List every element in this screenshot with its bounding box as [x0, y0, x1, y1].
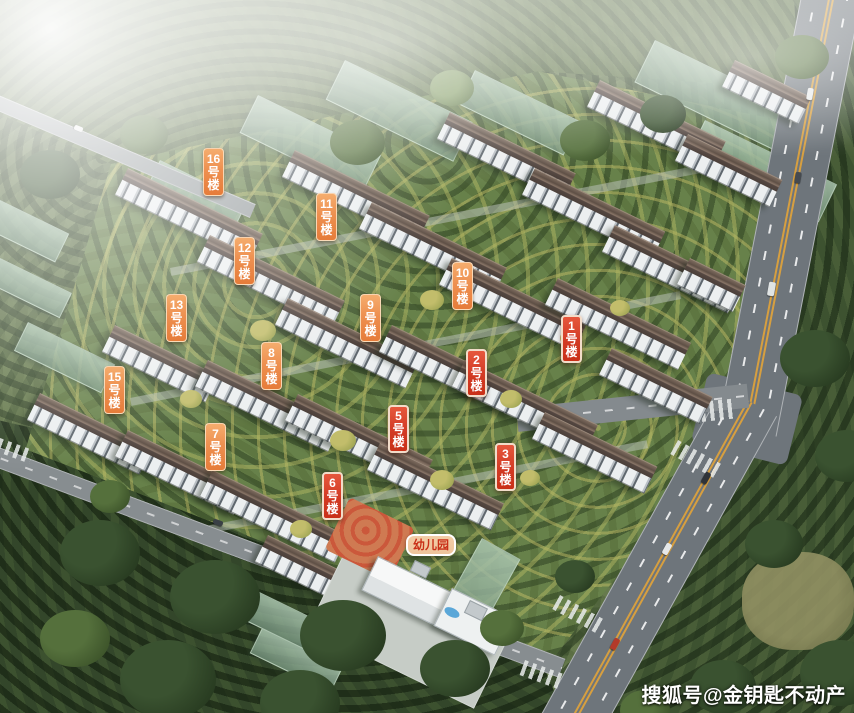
car	[212, 518, 223, 526]
car	[73, 124, 83, 132]
watermark: 搜狐号@金钥匙不动产	[641, 679, 846, 708]
car	[661, 542, 672, 555]
car	[794, 172, 802, 184]
car	[609, 637, 620, 650]
car	[767, 281, 776, 296]
site-aerial-render: 1号楼2号楼3号楼5号楼6号楼7号楼8号楼9号楼10号楼11号楼12号楼13号楼…	[0, 0, 854, 713]
kindergarten-label: 幼儿园	[406, 534, 456, 556]
car	[806, 88, 814, 101]
cars	[0, 0, 854, 713]
car	[700, 471, 711, 484]
